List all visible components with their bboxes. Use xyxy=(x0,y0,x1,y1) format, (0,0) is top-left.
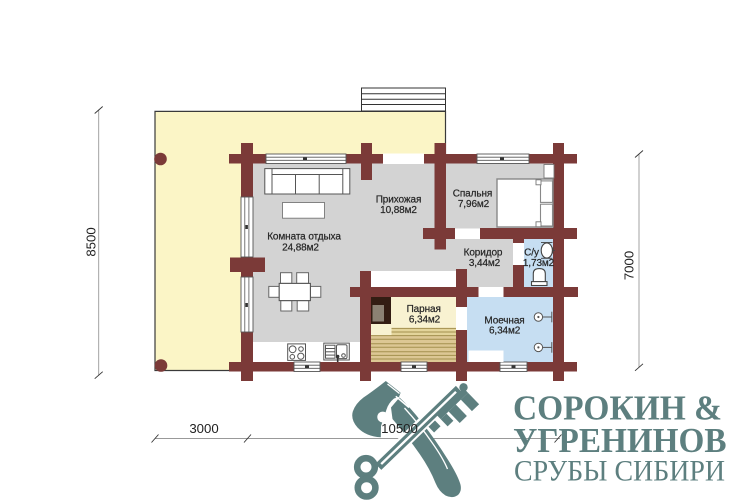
svg-text:7,96м2: 7,96м2 xyxy=(458,199,490,210)
svg-text:10500: 10500 xyxy=(381,421,418,436)
svg-text:Спальня: Спальня xyxy=(453,189,492,200)
svg-text:8500: 8500 xyxy=(84,227,99,256)
svg-text:СРУБЫ СИБИРИ: СРУБЫ СИБИРИ xyxy=(514,455,725,488)
svg-text:6,34м2: 6,34м2 xyxy=(409,315,441,326)
svg-text:Прихожая: Прихожая xyxy=(376,194,422,205)
svg-text:3,44м2: 3,44м2 xyxy=(469,258,501,269)
svg-text:6,34м2: 6,34м2 xyxy=(489,326,521,337)
svg-text:24,88м2: 24,88м2 xyxy=(282,242,319,253)
svg-text:7000: 7000 xyxy=(622,251,637,280)
svg-text:10,88м2: 10,88м2 xyxy=(380,205,417,216)
svg-text:Парная: Парная xyxy=(407,304,441,315)
svg-text:3000: 3000 xyxy=(189,421,218,436)
svg-text:1,73м2: 1,73м2 xyxy=(523,258,555,269)
svg-text:Комната отдыха: Комната отдыха xyxy=(267,232,341,243)
